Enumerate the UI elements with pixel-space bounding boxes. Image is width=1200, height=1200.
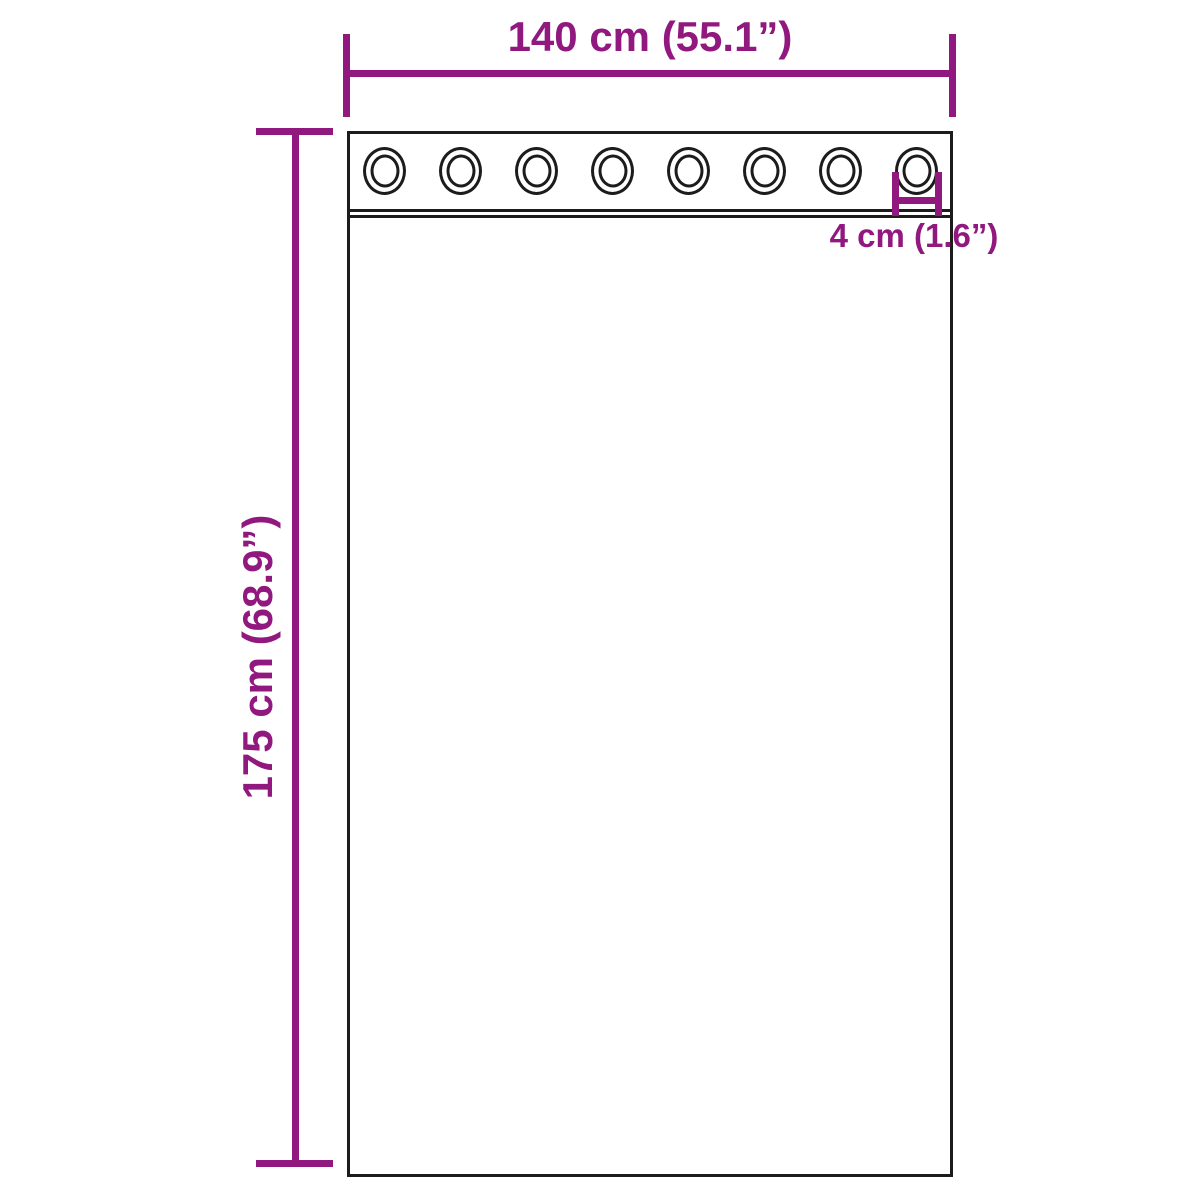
grommet-hole (902, 155, 931, 188)
grommet-hole (750, 155, 779, 188)
curtain-panel (347, 131, 953, 1177)
grommet (363, 147, 406, 195)
width-dimension-line (347, 70, 953, 77)
grommet-hole (370, 155, 399, 188)
grommet-dimension-label: 4 cm (1.6”) (789, 217, 1039, 255)
height-dimension-tick-bottom (256, 1160, 333, 1167)
grommet-hole (826, 155, 855, 188)
grommet-hole (522, 155, 551, 188)
grommet (515, 147, 558, 195)
grommet (591, 147, 634, 195)
height-dimension-line (292, 131, 299, 1167)
grommet-hole (674, 155, 703, 188)
diagram-canvas: 140 cm (55.1”) 175 cm (68.9”) 4 cm (1.6”… (0, 0, 1200, 1200)
grommet (439, 147, 482, 195)
grommet-band (350, 134, 950, 212)
grommet (743, 147, 786, 195)
grommet-dimension-tick-right (935, 172, 942, 216)
grommet (895, 147, 938, 195)
height-dimension-tick-top (256, 128, 333, 135)
grommet-hole (446, 155, 475, 188)
grommet (667, 147, 710, 195)
width-dimension-tick-right (949, 34, 956, 117)
grommet (819, 147, 862, 195)
width-dimension-tick-left (343, 34, 350, 117)
height-dimension-label: 175 cm (68.9”) (234, 515, 282, 800)
width-dimension-label: 140 cm (55.1”) (347, 13, 953, 61)
band-stitch-line-upper (350, 209, 950, 212)
grommet-hole (598, 155, 627, 188)
grommet-dimension-line (892, 197, 942, 204)
grommet-dimension-tick-left (892, 172, 899, 216)
